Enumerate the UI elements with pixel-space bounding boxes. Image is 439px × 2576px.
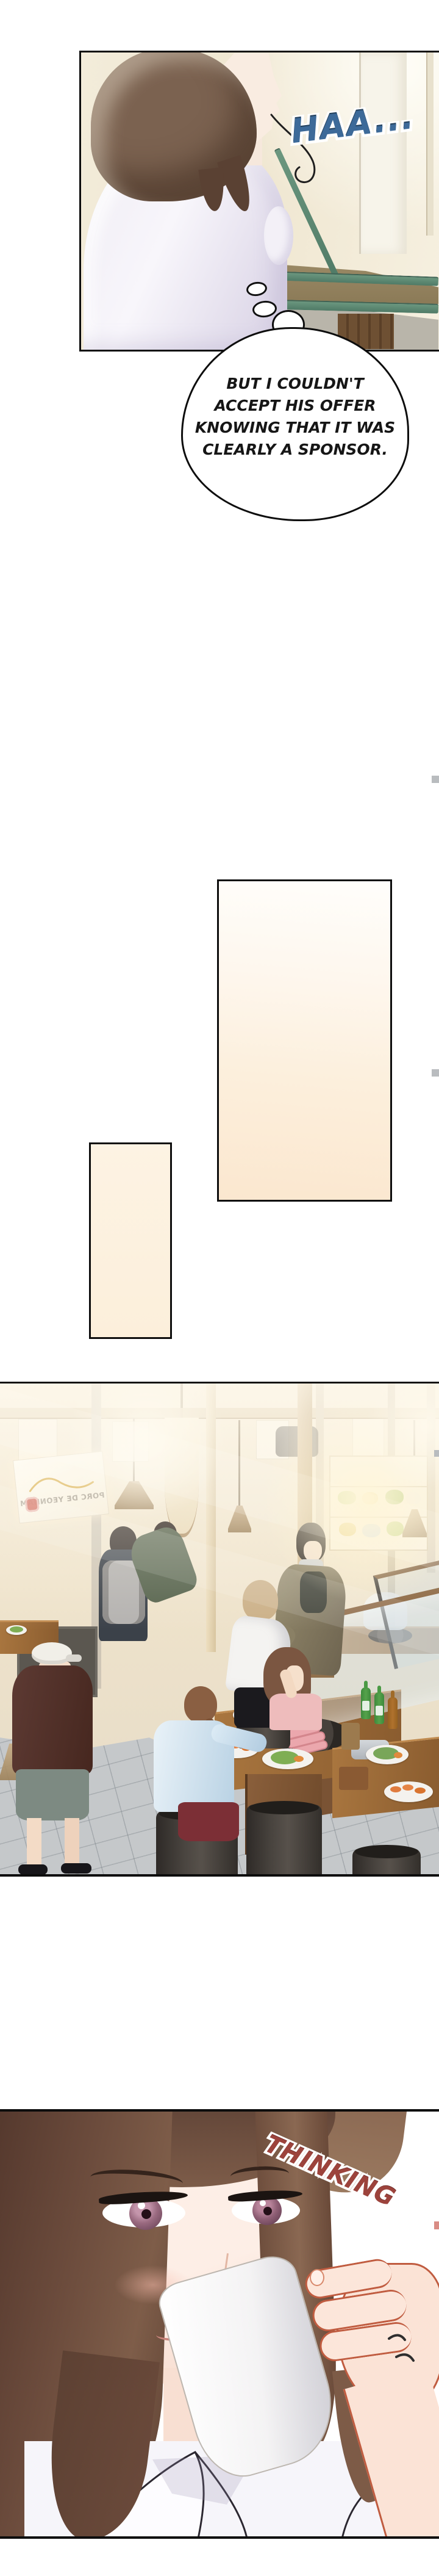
drum-stool bbox=[246, 1805, 322, 1877]
right-eye bbox=[232, 2191, 300, 2228]
tissue-box bbox=[339, 1767, 368, 1790]
bottle-neck bbox=[377, 1686, 381, 1694]
woman-red-skirt bbox=[178, 1802, 239, 1841]
shrimp bbox=[402, 1784, 413, 1791]
plate bbox=[366, 1745, 409, 1764]
cap-man-leg bbox=[65, 1818, 79, 1866]
bottle-neck bbox=[391, 1690, 394, 1698]
girl-pink-top bbox=[269, 1694, 322, 1730]
shrimp bbox=[390, 1786, 401, 1792]
motion-squiggle-icon bbox=[354, 2307, 439, 2386]
eye-glint bbox=[260, 2200, 266, 2206]
fingernail bbox=[310, 2269, 324, 2286]
structure-post bbox=[206, 1384, 216, 1652]
drum-stool bbox=[352, 1849, 421, 1877]
soju-bottle bbox=[361, 1687, 371, 1719]
drum-stool-top bbox=[355, 1845, 418, 1858]
placeholder-panel-small bbox=[89, 1142, 172, 1339]
menu-board bbox=[352, 1418, 384, 1459]
pupil bbox=[263, 2207, 272, 2215]
edge-artifact bbox=[432, 776, 439, 783]
cap-man-white-cap bbox=[32, 1642, 72, 1664]
plate bbox=[262, 1748, 313, 1769]
chopstick-holder bbox=[341, 1723, 360, 1750]
shrimp-plate bbox=[384, 1781, 433, 1802]
plate bbox=[6, 1625, 27, 1635]
pupil bbox=[141, 2209, 151, 2219]
carrot bbox=[294, 1756, 304, 1762]
panel-restaurant: PORC DE YEONNAM bbox=[0, 1382, 439, 1877]
thought-bubble: BUT I COULDN'T ACCEPT HIS OFFER KNOWING … bbox=[181, 327, 409, 521]
monologue-line: ACCEPT HIS OFFER bbox=[183, 395, 407, 417]
soju-bottle bbox=[374, 1692, 384, 1724]
edge-artifact bbox=[434, 2221, 439, 2229]
bottle-label bbox=[362, 1701, 369, 1711]
panel-drinking: THINKING THINKING bbox=[0, 2109, 439, 2539]
cap-brim bbox=[66, 1654, 82, 1662]
left-eye bbox=[102, 2192, 185, 2231]
cap-man-leg bbox=[27, 1818, 41, 1867]
beer-bottle bbox=[388, 1697, 398, 1729]
monologue-line: BUT I COULDN'T bbox=[183, 373, 407, 395]
bottle-neck bbox=[364, 1681, 368, 1689]
carrot bbox=[394, 1752, 402, 1758]
food-blob bbox=[406, 1492, 421, 1504]
monologue-line: KNOWING THAT IT WAS bbox=[183, 417, 407, 439]
edge-artifact bbox=[432, 1069, 439, 1077]
cap-man-shoe bbox=[61, 1863, 91, 1874]
edge-artifact bbox=[434, 1450, 439, 1457]
cap-man-shorts bbox=[16, 1769, 89, 1820]
placeholder-panel-tall bbox=[217, 879, 392, 1202]
webtoon-page: HAA... HAA... BUT I COULDN'T ACCEPT HIS … bbox=[0, 0, 439, 2576]
monologue-text: BUT I COULDN'T ACCEPT HIS OFFER KNOWING … bbox=[183, 373, 407, 461]
eye-glint bbox=[138, 2202, 145, 2209]
bottle-label bbox=[376, 1706, 383, 1716]
woman-ponytail-head bbox=[184, 1686, 217, 1723]
standing-man-face bbox=[304, 1541, 322, 1562]
lettuce bbox=[10, 1626, 23, 1633]
cap-man-shoe bbox=[18, 1864, 48, 1875]
shrimp bbox=[415, 1788, 426, 1794]
monologue-line: CLEARLY A SPONSOR. bbox=[183, 439, 407, 461]
drum-stool-top bbox=[249, 1801, 319, 1814]
cap-man-jacket bbox=[12, 1665, 93, 1774]
